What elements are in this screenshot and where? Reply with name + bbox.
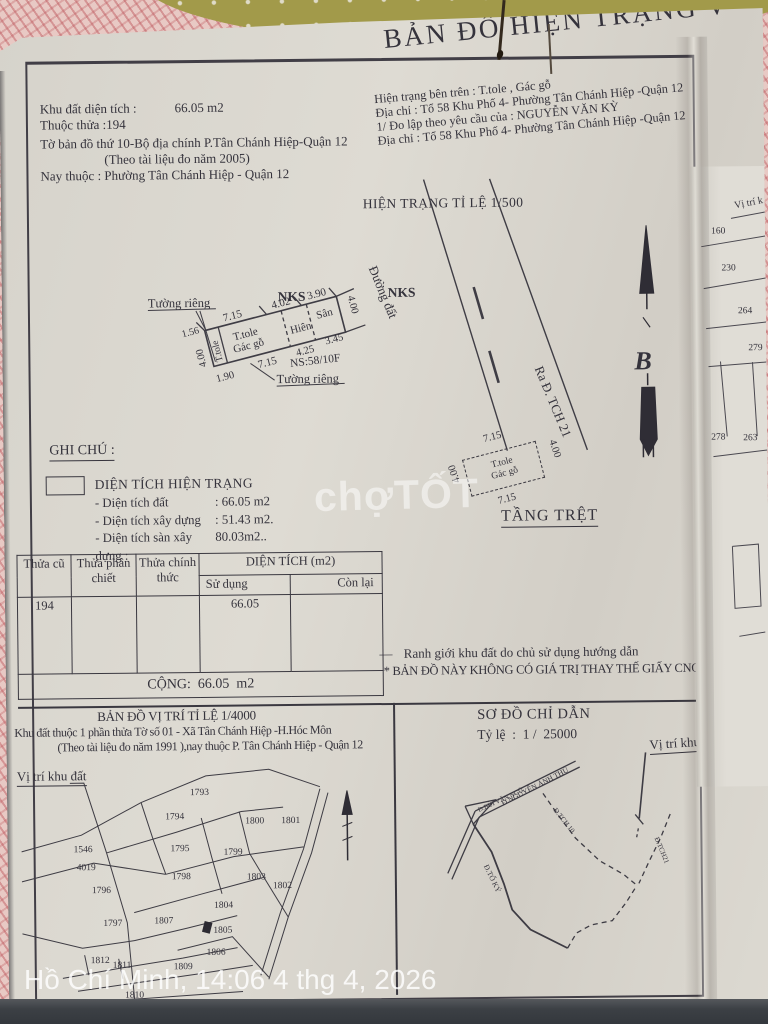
sketch-roads — [447, 752, 672, 949]
legend-item: - Diện tích đất: 66.05 m2 — [95, 493, 273, 512]
col-header-remain: Còn lại — [290, 574, 382, 595]
legend-item-value: : 66.05 m2 — [215, 493, 270, 511]
north-arrow-small-icon — [342, 790, 353, 860]
parcel-number: 1546 — [73, 845, 92, 855]
dim-label: 4.00 — [345, 294, 360, 315]
road-label: Đ.TỔ KÝ — [482, 863, 504, 895]
cell-split — [71, 596, 137, 674]
parcel-number: 1795 — [170, 844, 189, 854]
parcel-number: 1797 — [103, 919, 122, 929]
survey-diagram: Đường đất Ra Đ. TCH 21 NKS NKS 7.15 4.02… — [26, 167, 679, 464]
parcel-number: 1800 — [245, 816, 264, 826]
parcel-number: 1806 — [207, 948, 226, 958]
side-parcel-number: 160 — [711, 226, 726, 236]
side-parcel-number: 278 — [711, 432, 726, 442]
boundary-note: Ranh giới khu đất do chủ sử dụng hướng d… — [404, 643, 639, 660]
parcel-number: 1804 — [214, 901, 233, 911]
north-arrow-icon: B — [632, 225, 657, 459]
side-parcel-number: 264 — [738, 306, 753, 316]
parcel-number: 1807 — [154, 916, 173, 926]
area-table: Thửa cũ Thửa phân chiết Thửa chính thức … — [16, 551, 383, 700]
legend-item-label: - Diện tích xây dựng — [95, 511, 215, 530]
cell-old: 194 — [17, 597, 72, 675]
parcel-number: 1794 — [165, 812, 184, 822]
side-parcel-number: 230 — [721, 263, 736, 273]
cell-used: 66.05 — [199, 595, 291, 673]
parcel-number: 1796 — [92, 886, 111, 896]
cell-remain — [290, 594, 383, 672]
road-label: Đ.NGUYỄN ẢNH THỦ — [499, 763, 570, 807]
legend-item-value: : 51.43 m2. — [215, 511, 273, 529]
side-sheet-label: Vị trí k — [733, 195, 763, 211]
boundary-note-line: — Ranh giới khu đất do chủ sử dụng hướng… — [379, 643, 638, 662]
parcel-number: 1798 — [172, 872, 191, 882]
dim-label: 4.00 — [194, 348, 209, 369]
yard-label: Sân — [315, 306, 334, 322]
location-map-title: BẢN ĐỒ VỊ TRÍ TỈ LỆ 1/4000 — [97, 707, 256, 725]
subject-parcel-marker — [202, 921, 212, 934]
side-sheet: Vị trí k 160 230 264 279 278 263 — [690, 166, 768, 787]
notes-section-title: GHI CHÚ : — [49, 443, 115, 462]
parcel-number: 4019 — [77, 863, 96, 873]
ground-floor-title: TẦNG TRỆT — [501, 507, 598, 528]
guide-map-scale: Tỷ lệ : 1 / 25000 — [477, 726, 577, 743]
paper-edge-shadow — [0, 71, 15, 1012]
dim-label: 3.45 — [324, 332, 345, 347]
parcel-number: 1802 — [273, 881, 292, 891]
photo-scene: BẢN ĐỒ HIỆN TRẠNG V Khu đất diện tích :6… — [0, 0, 768, 1024]
north-letter: B — [633, 346, 652, 375]
area-label: Khu đất diện tích : — [40, 101, 137, 117]
road-direction-label: Ra Đ. TCH 21 — [532, 364, 575, 440]
legend-title: DIỆN TÍCH HIỆN TRẠNG — [95, 475, 253, 493]
col-header-official: Thửa chính thức — [136, 553, 199, 596]
dim-label: 1.56 — [181, 325, 201, 340]
road-label: Đ.TCH 10 — [552, 807, 577, 835]
location-map-desc2: (Theo tài liệu đo năm 1991 ),nay thuộc P… — [57, 737, 362, 755]
parcel-line: Thuộc thửa :194 — [40, 114, 370, 133]
col-header-area: DIỆN TÍCH (m2) — [199, 552, 382, 576]
parcel-number: 1805 — [213, 926, 232, 936]
timestamp-watermark: Hồ Chí Minh, 14:06 4 thg 4, 2026 — [24, 964, 437, 996]
boundary-marker: — — [379, 646, 392, 661]
parcel-number: 1801 — [281, 816, 300, 826]
parcel-number: 1799 — [224, 848, 243, 858]
cell-official — [136, 595, 200, 673]
brand-watermark: chợTỐT — [313, 470, 479, 521]
porch-label: Hiên — [289, 320, 313, 337]
col-header-split: Thửa phân chiết — [71, 554, 136, 597]
dim-label: 4.00 — [546, 438, 562, 459]
legend-item-label: - Diện tích đất — [95, 494, 215, 513]
area-value: 66.05 m2 — [174, 100, 223, 116]
dim-label: 1.90 — [215, 370, 236, 385]
nks-right-label: NKS — [388, 285, 416, 300]
dim-label: 7.15 — [497, 492, 518, 507]
dim-label: 7.15 — [257, 354, 279, 371]
parcel-number: 1803 — [247, 872, 266, 882]
wall-top-label: Tường riêng — [148, 296, 211, 311]
table-total: CỘNG: 66.05 m2 — [18, 671, 383, 700]
legend-item: - Diện tích xây dựng: 51.43 m2. — [95, 511, 273, 530]
guide-map-title: SƠ ĐỒ CHỈ DẪN — [477, 706, 590, 724]
table-edge-strip — [0, 999, 768, 1024]
parcel-number: 1793 — [190, 788, 209, 798]
side-parcel-number: 279 — [748, 343, 763, 353]
legend-box — [46, 476, 85, 495]
col-header-used: Sử dụng — [199, 575, 290, 596]
col-header-old: Thửa cũ — [17, 555, 71, 598]
side-sheet-lines: Vị trí k 160 230 264 279 278 263 — [690, 166, 768, 787]
road-label: Đ.TCH21 — [653, 836, 671, 865]
road-sketch: Đ.BÙI VĂN NGỮ Đ.NGUYỄN ẢNH THỦ Đ.TCH 10 … — [403, 752, 706, 1010]
side-parcel-number: 263 — [743, 433, 758, 443]
